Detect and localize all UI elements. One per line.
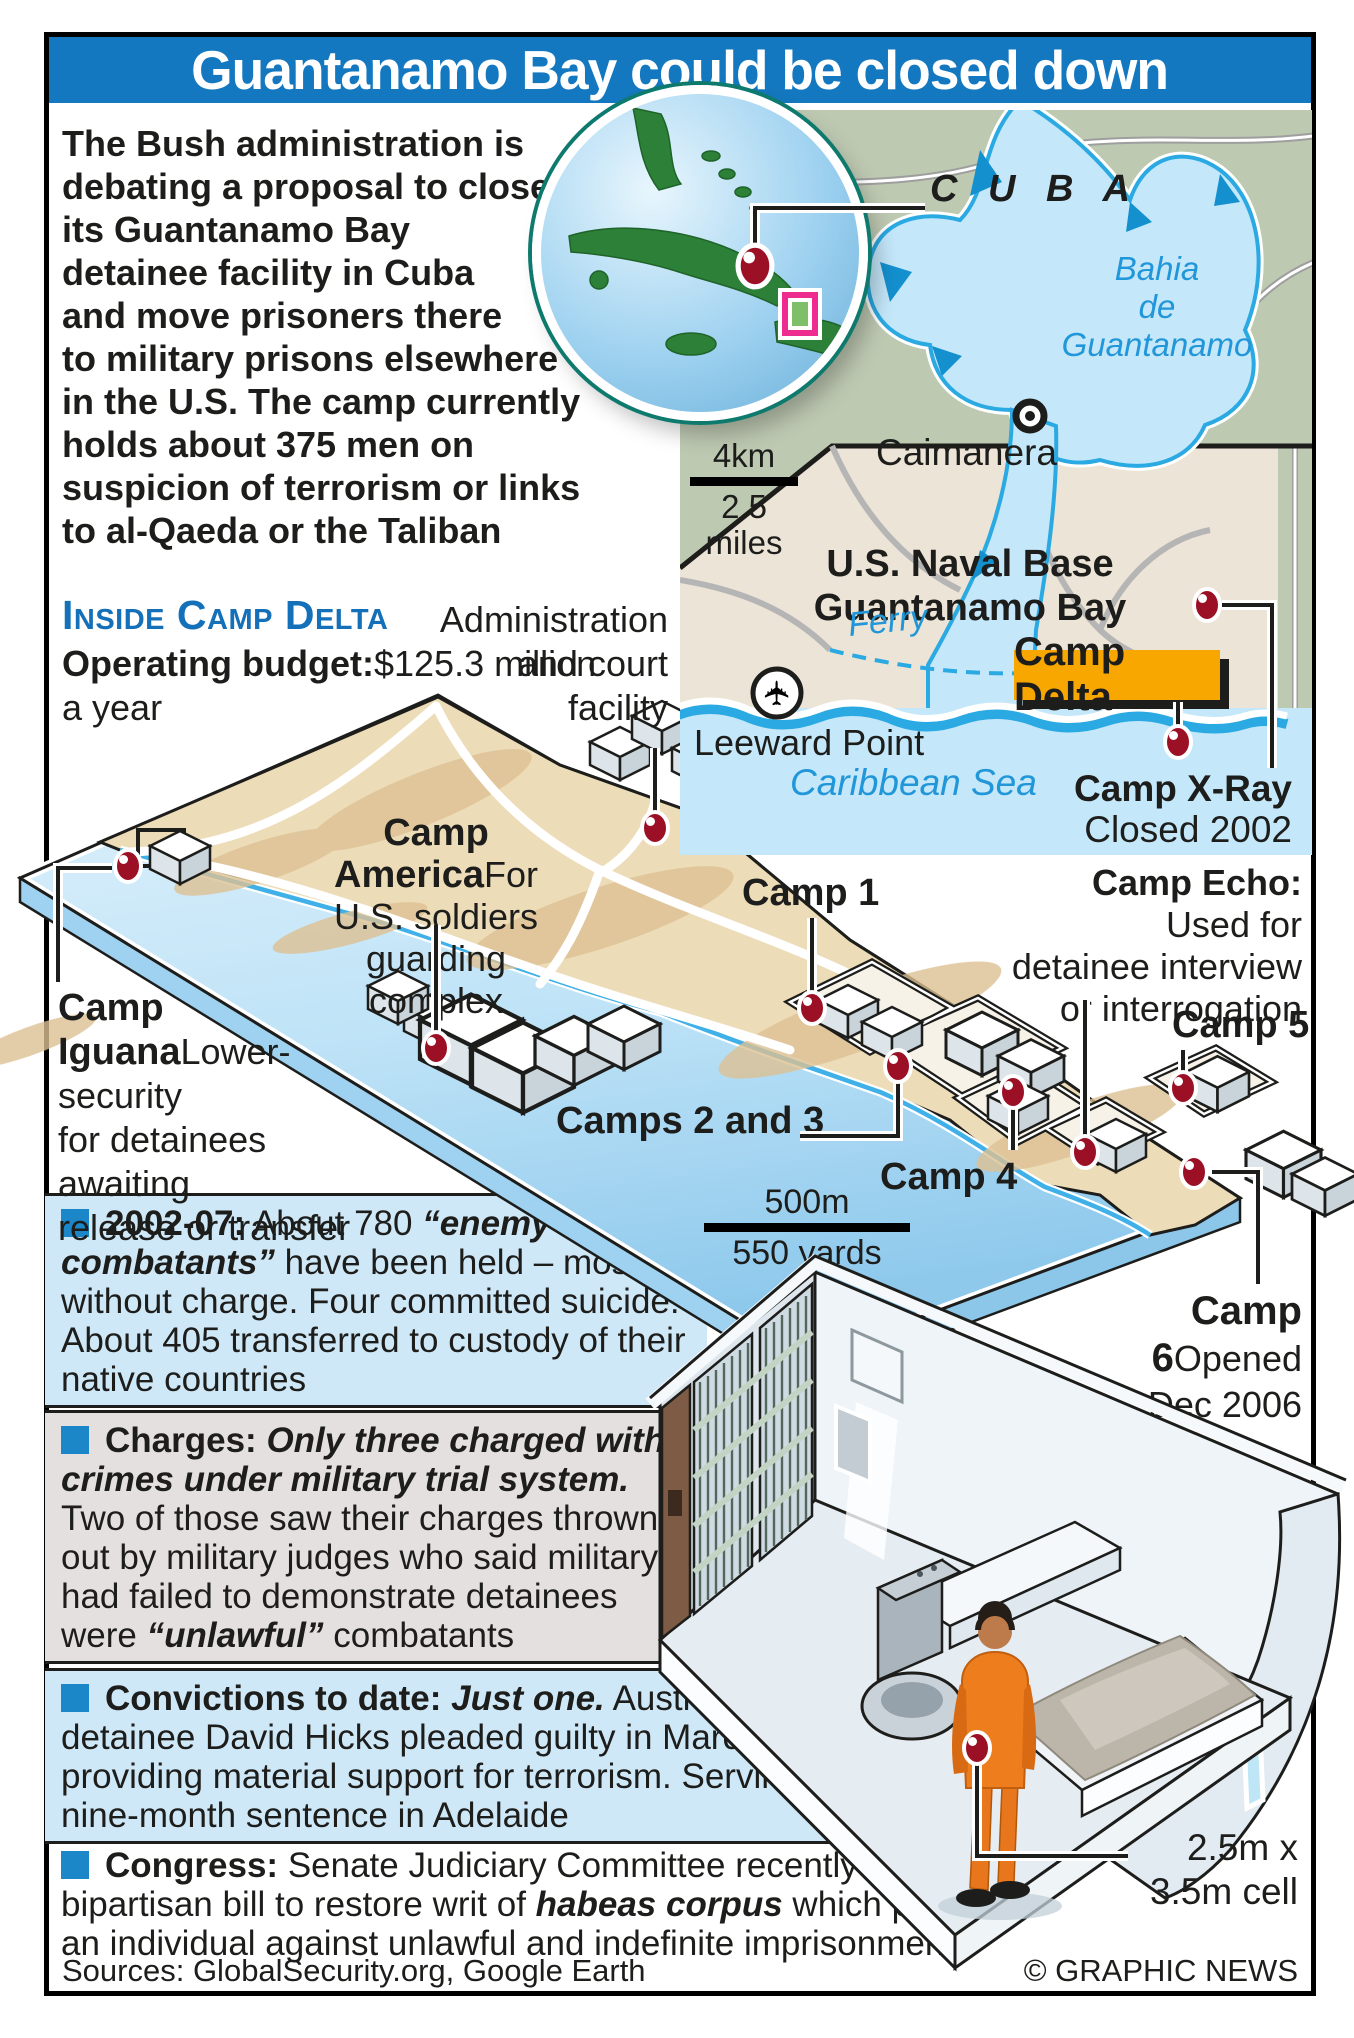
bahia-label: Bahia de Guantanamo bbox=[1052, 250, 1262, 364]
camp-delta-label: Camp Delta bbox=[1014, 650, 1220, 700]
section-heading: Inside Camp Delta bbox=[62, 592, 388, 639]
locator-globe bbox=[532, 85, 868, 421]
ferry-label: Ferry bbox=[846, 598, 929, 645]
camp-iguana-label: Camp IguanaLower-security for detainees … bbox=[58, 986, 388, 1250]
caribbean-sea-label: Caribbean Sea bbox=[790, 762, 1037, 804]
svg-text:✈: ✈ bbox=[759, 679, 797, 708]
infographic: Guantanamo Bay could be closed down The … bbox=[0, 0, 1354, 2038]
camps-2-3-label: Camps 2 and 3 bbox=[556, 1100, 824, 1142]
camp1-label: Camp 1 bbox=[742, 872, 879, 914]
globe-land bbox=[569, 108, 868, 360]
camp-xray-label: Camp X-RayClosed 2002 bbox=[1060, 768, 1292, 850]
camp5-label: Camp 5 bbox=[1172, 1004, 1309, 1046]
caimanera-marker bbox=[1016, 402, 1044, 430]
bullet-icon bbox=[61, 1851, 89, 1879]
leeward-point-label: Leeward Point bbox=[694, 722, 924, 764]
scale-bar bbox=[690, 477, 798, 486]
guantanamo-locator-box bbox=[782, 292, 818, 336]
map-scale: 4km 2.5 miles bbox=[688, 438, 800, 561]
cuba-label: C U B A bbox=[930, 168, 1140, 211]
credit-line: © GRAPHIC NEWS bbox=[998, 1953, 1298, 1989]
fact-lead: Convictions to date: bbox=[105, 1679, 441, 1718]
sources-line: Sources: GlobalSecurity.org, Google Eart… bbox=[62, 1953, 646, 1989]
mirror bbox=[836, 1406, 870, 1482]
bullet-icon bbox=[61, 1684, 89, 1712]
cell-size-label: 2.5m x 3.5m cell bbox=[1148, 1826, 1298, 1914]
airport-icon: ✈ bbox=[753, 669, 801, 717]
caimanera-label: Caimanera bbox=[876, 432, 1057, 474]
fact-lead: Congress: bbox=[105, 1846, 278, 1885]
admin-facility-label: Administration and court facility bbox=[430, 598, 668, 730]
